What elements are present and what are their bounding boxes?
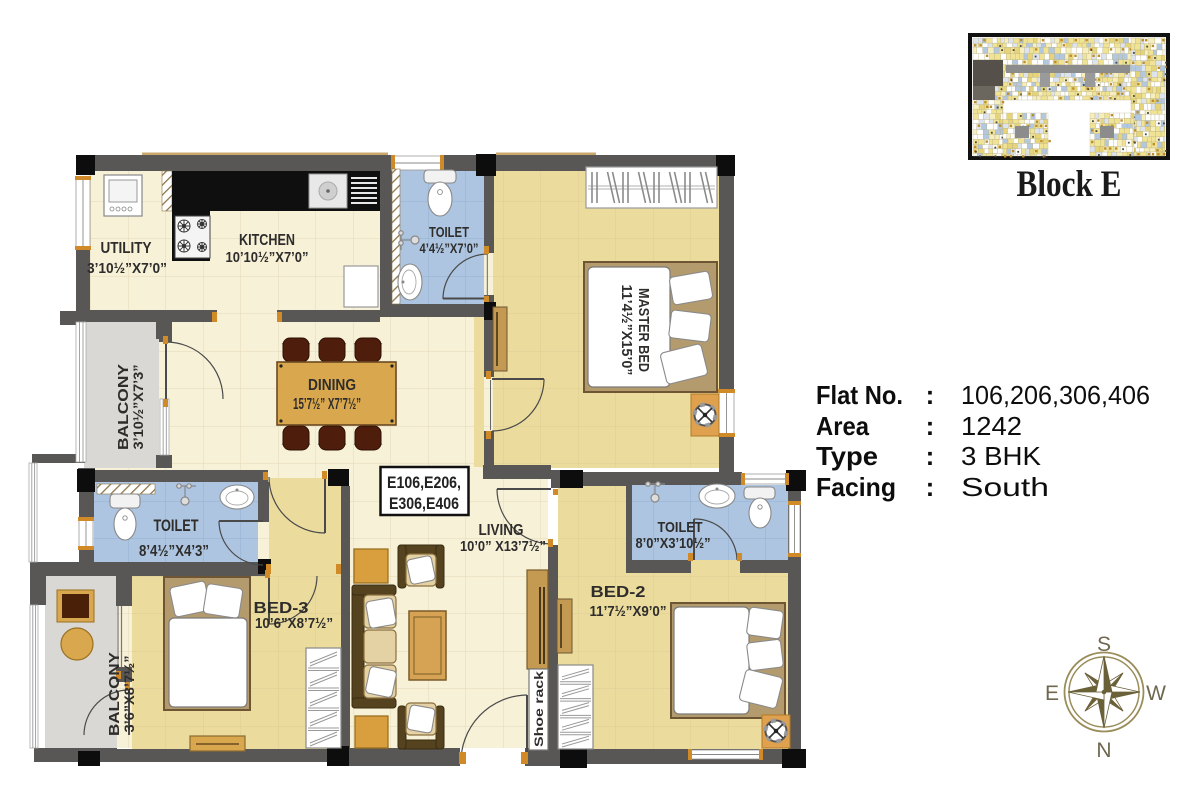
svg-text:S: S: [1097, 633, 1111, 656]
svg-text:106,206,306,406: 106,206,306,406: [961, 380, 1150, 410]
svg-text:3 BHK: 3 BHK: [961, 441, 1042, 471]
svg-text:E106,E206,: E106,E206,: [387, 473, 461, 492]
svg-text:N: N: [1096, 739, 1111, 762]
svg-text:MASTER BED: MASTER BED: [635, 288, 651, 372]
svg-text::: :: [926, 380, 935, 410]
svg-text:8’0”X3’10½”: 8’0”X3’10½”: [636, 536, 711, 552]
svg-text:BALCONY: BALCONY: [115, 364, 132, 450]
svg-text:1242: 1242: [961, 411, 1022, 441]
svg-text:3’10½”X7’0”: 3’10½”X7’0”: [87, 260, 167, 277]
svg-text:Block E: Block E: [1017, 164, 1122, 205]
svg-text:LIVING: LIVING: [479, 522, 524, 539]
svg-text:10’0” X13’7½”: 10’0” X13’7½”: [460, 538, 546, 555]
svg-text:10’6”X8’7½”: 10’6”X8’7½”: [255, 615, 333, 632]
svg-text:3’10½”X7’3”: 3’10½”X7’3”: [131, 365, 146, 450]
svg-text:E: E: [1045, 682, 1059, 705]
svg-text:W: W: [1146, 682, 1166, 705]
svg-text:TOILET: TOILET: [429, 225, 469, 241]
svg-text:South: South: [961, 472, 1049, 502]
svg-text:DINING: DINING: [308, 377, 356, 394]
svg-text:BALCONY: BALCONY: [106, 652, 123, 736]
svg-text:Flat No.: Flat No.: [816, 380, 903, 410]
svg-text:4’4½”X7’0”: 4’4½”X7’0”: [420, 240, 479, 256]
svg-text::: :: [926, 411, 935, 441]
svg-text:Type: Type: [816, 441, 878, 471]
svg-text:Area: Area: [816, 411, 869, 441]
svg-text:E306,E406: E306,E406: [389, 494, 459, 513]
svg-text:UTILITY: UTILITY: [101, 240, 152, 257]
svg-text:TOILET: TOILET: [154, 517, 199, 535]
svg-text::: :: [926, 441, 935, 471]
svg-text:TOILET: TOILET: [658, 519, 703, 536]
svg-text:11’4½”X15’0”: 11’4½”X15’0”: [618, 285, 634, 376]
svg-text::: :: [926, 472, 935, 502]
svg-text:15’7½” X7’7½”: 15’7½” X7’7½”: [293, 396, 361, 413]
svg-text:Facing: Facing: [816, 472, 896, 502]
svg-text:KITCHEN: KITCHEN: [239, 232, 295, 249]
svg-text:10’10½”X7’0”: 10’10½”X7’0”: [226, 249, 309, 266]
svg-text:11’7½”X9’0”: 11’7½”X9’0”: [590, 603, 667, 620]
svg-text:3’6”X8’7½”: 3’6”X8’7½”: [122, 656, 137, 733]
svg-text:Shoe rack: Shoe rack: [532, 671, 546, 747]
svg-text:BED-2: BED-2: [591, 584, 646, 601]
svg-text:8’4½”X4’3”: 8’4½”X4’3”: [139, 543, 209, 560]
